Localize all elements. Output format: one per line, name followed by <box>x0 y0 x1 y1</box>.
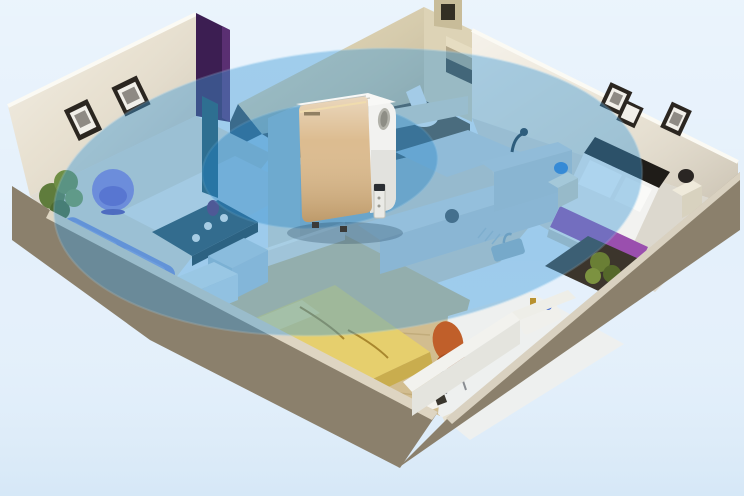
control-button <box>378 197 381 200</box>
apartment-render-image <box>0 0 744 496</box>
niche-opening <box>441 4 455 20</box>
apartment-scene <box>0 0 744 496</box>
purifier-panel-sheen <box>299 97 372 222</box>
bedside-lamp-dark <box>678 169 694 183</box>
control-display <box>374 184 385 191</box>
purifier-brand-mark <box>304 112 320 116</box>
purifier-shadow <box>287 222 403 244</box>
control-button <box>378 205 381 208</box>
caster-wheel <box>340 226 347 232</box>
caster-wheel <box>312 222 319 228</box>
